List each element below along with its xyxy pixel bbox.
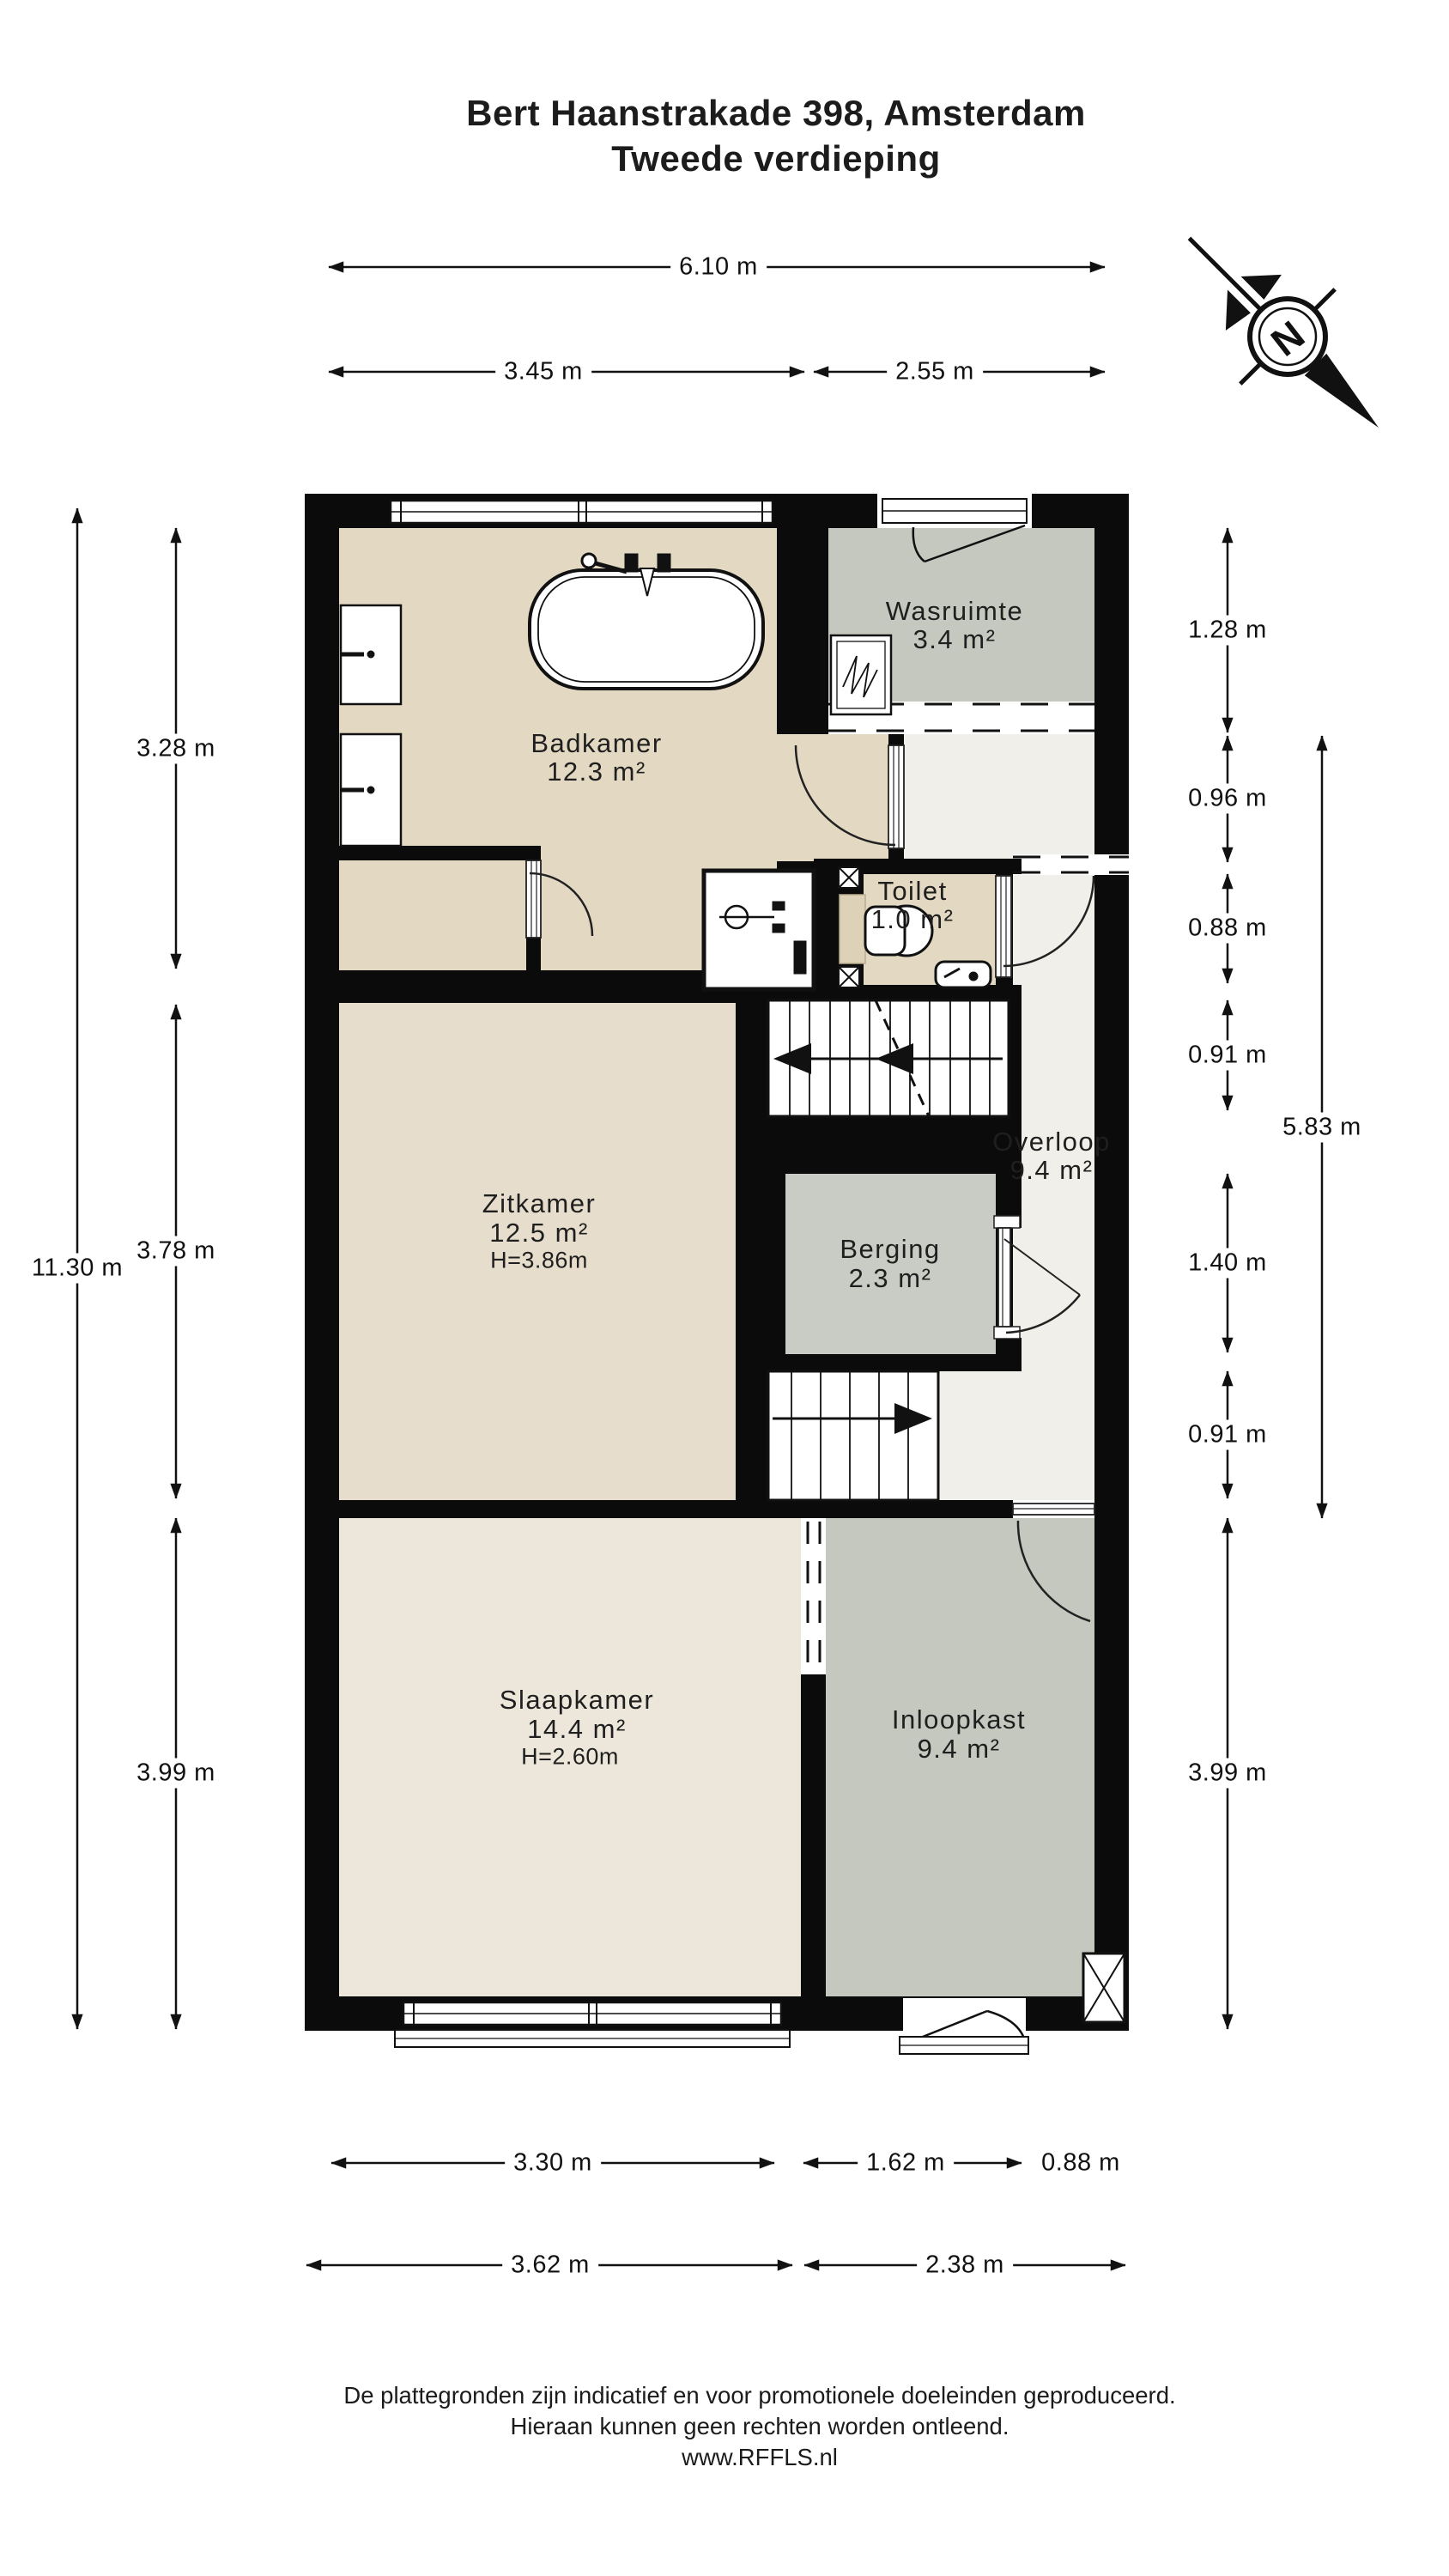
shaft-icon — [1083, 1953, 1125, 2022]
footer-line-2: Hieraan kunnen geen rechten worden ontle… — [343, 2411, 1175, 2442]
dim-right-seg-6: 0.91 m — [1179, 1420, 1276, 1450]
room-area-badkamer: 12.3 m² — [547, 756, 646, 787]
room-label-zitkamer: Zitkamer — [482, 1188, 597, 1219]
room-label-badkamer: Badkamer — [530, 728, 662, 759]
footer-line-3: www.RFFLS.nl — [343, 2442, 1175, 2473]
stairs-upper — [768, 1000, 1009, 1116]
shower-icon — [704, 871, 814, 989]
room-height-zitkamer: H=3.86m — [490, 1248, 588, 1274]
room-area-overloop: 9.4 m² — [1010, 1155, 1094, 1186]
dim-right-seg-2: 0.96 m — [1179, 784, 1276, 814]
page-title: Bert Haanstrakade 398, Amsterdam Tweede … — [466, 90, 1086, 181]
room-label-overloop: Overloop — [992, 1127, 1111, 1157]
sink-icon — [341, 605, 401, 704]
dim-right-seg-5: 1.40 m — [1179, 1249, 1276, 1279]
footer-line-1: De plattegronden zijn indicatief en voor… — [343, 2380, 1175, 2411]
washing-machine-icon — [831, 635, 891, 714]
room-label-inloopkast: Inloopkast — [892, 1704, 1026, 1735]
floorplan-canvas: Bert Haanstrakade 398, Amsterdam Tweede … — [0, 0, 1449, 2576]
dim-left-seg-3: 3.99 m — [128, 1759, 224, 1789]
floorplan-page: { "header": { "title_line1": "Bert Haans… — [0, 0, 1449, 2576]
dim-right-seg-4: 0.91 m — [1179, 1041, 1276, 1071]
floor-overloop-lower — [938, 1371, 1022, 1500]
floorplan-drawing — [0, 0, 1449, 2576]
dim-bottom2-seg-1: 3.62 m — [502, 2251, 598, 2281]
sink-icon — [341, 734, 401, 846]
dim-left-seg-1: 3.28 m — [128, 734, 224, 764]
bathtub-icon — [530, 554, 763, 689]
room-label-wasruimte: Wasruimte — [886, 596, 1023, 627]
footer-disclaimer: De plattegronden zijn indicatief en voor… — [343, 2380, 1175, 2473]
title-address: Bert Haanstrakade 398, Amsterdam — [466, 90, 1086, 136]
dim-top-total: 6.10 m — [670, 252, 767, 283]
dim-right-seg-3: 0.88 m — [1179, 914, 1276, 944]
room-label-toilet: Toilet — [877, 876, 947, 907]
room-area-wasruimte: 3.4 m² — [913, 624, 997, 655]
room-label-berging: Berging — [840, 1234, 940, 1265]
hand-basin-icon — [936, 962, 991, 987]
dim-bottom2-seg-2: 2.38 m — [917, 2251, 1013, 2281]
room-area-slaapkamer: 14.4 m² — [527, 1714, 627, 1745]
floor-overloop-right — [1013, 875, 1094, 1500]
window-bottom-slaapkamer — [395, 2002, 790, 2047]
dim-bottom1-seg-3: 0.88 m — [1033, 2148, 1129, 2178]
room-area-inloopkast: 9.4 m² — [918, 1734, 1001, 1765]
room-area-zitkamer: 12.5 m² — [489, 1218, 589, 1249]
dim-left-total: 11.30 m — [23, 1254, 131, 1284]
dim-top-seg-2: 2.55 m — [887, 357, 983, 387]
door-inloopkast-bottom — [900, 1998, 1028, 2054]
room-label-slaapkamer: Slaapkamer — [500, 1685, 654, 1716]
room-area-berging: 2.3 m² — [849, 1263, 932, 1294]
dim-bottom1-seg-1: 3.30 m — [505, 2148, 601, 2178]
room-area-toilet: 1.0 m² — [871, 904, 955, 935]
dim-bottom1-seg-2: 1.62 m — [858, 2148, 954, 2178]
window-top-badkamer — [391, 501, 773, 523]
dim-left-seg-2: 3.78 m — [128, 1236, 224, 1267]
dim-right-seg-1: 1.28 m — [1179, 616, 1276, 646]
dim-top-seg-1: 3.45 m — [495, 357, 591, 387]
dim-right-seg-7: 3.99 m — [1179, 1759, 1276, 1789]
room-height-slaapkamer: H=2.60m — [521, 1744, 619, 1771]
floor-overloop-upper — [904, 734, 1094, 861]
stairs-lower — [768, 1371, 938, 1500]
title-floor: Tweede verdieping — [466, 136, 1086, 181]
dim-right-total: 5.83 m — [1274, 1113, 1370, 1143]
